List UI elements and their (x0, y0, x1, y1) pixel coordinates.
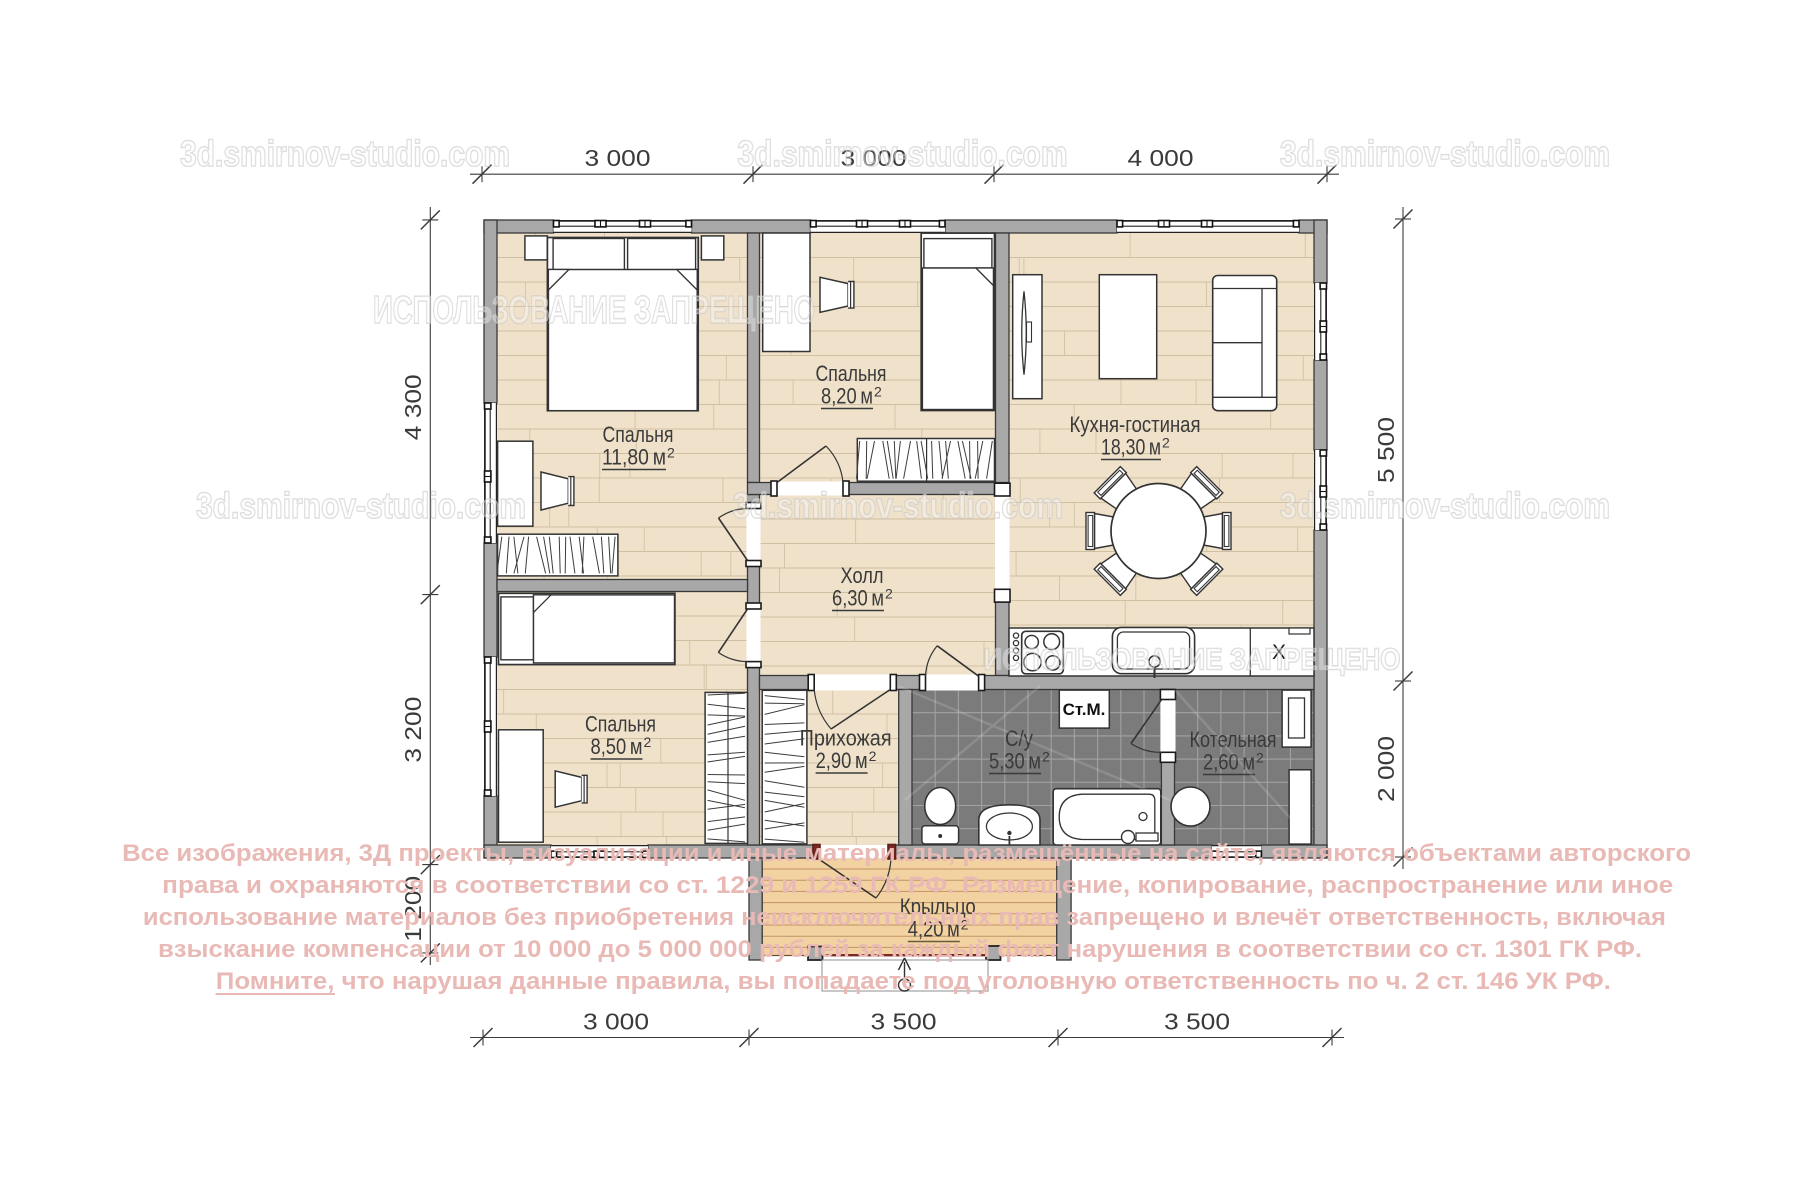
svg-text:3d.smirnov-studio.com: 3d.smirnov-studio.com (1280, 133, 1610, 174)
svg-text:5 500: 5 500 (1373, 417, 1399, 483)
svg-text:3 000: 3 000 (583, 1009, 649, 1035)
svg-text:2: 2 (1162, 435, 1170, 451)
svg-text:ИСПОЛЬЗОВАНИЕ ЗАПРЕЩЕНО: ИСПОЛЬЗОВАНИЕ ЗАПРЕЩЕНО (984, 642, 1401, 677)
svg-text:2: 2 (885, 586, 893, 602)
svg-text:2: 2 (644, 734, 652, 750)
svg-text:Котельная: Котельная (1190, 727, 1277, 752)
svg-text:8,20 м: 8,20 м (821, 384, 873, 409)
svg-text:2,90 м: 2,90 м (816, 748, 868, 773)
svg-text:11,80 м: 11,80 м (602, 445, 666, 470)
svg-text:использование материалов без п: использование материалов без приобретени… (143, 904, 1666, 931)
svg-text:Холл: Холл (841, 563, 884, 588)
svg-text:3 500: 3 500 (1164, 1009, 1230, 1035)
svg-text:Спальня: Спальня (585, 712, 656, 737)
svg-text:8,50 м: 8,50 м (591, 734, 643, 759)
svg-text:Кухня-гостиная: Кухня-гостиная (1070, 412, 1201, 437)
svg-text:6,30 м: 6,30 м (832, 586, 884, 611)
svg-text:Ст.М.: Ст.М. (1063, 700, 1106, 719)
svg-text:2: 2 (667, 445, 675, 461)
svg-text:3d.smirnov-studio.com: 3d.smirnov-studio.com (1280, 485, 1610, 526)
svg-text:С/у: С/у (1005, 726, 1033, 751)
svg-text:18,30 м: 18,30 м (1101, 435, 1161, 460)
svg-text:3 500: 3 500 (871, 1009, 937, 1035)
svg-text:2: 2 (874, 384, 882, 400)
svg-text:2: 2 (869, 748, 877, 764)
svg-text:ИСПОЛЬЗОВАНИЕ ЗАПРЕЩЕНО: ИСПОЛЬЗОВАНИЕ ЗАПРЕЩЕНО (373, 289, 815, 332)
svg-text:3 200: 3 200 (400, 697, 426, 763)
svg-text:2: 2 (1256, 750, 1264, 766)
svg-text:3d.smirnov-studio.com: 3d.smirnov-studio.com (180, 133, 510, 174)
svg-text:взыскание компенсации от 10 00: взыскание компенсации от 10 000 до 5 000… (158, 936, 1642, 963)
svg-text:Все изображения, 3Д проекты, в: Все изображения, 3Д проекты, визуализаци… (122, 840, 1691, 867)
svg-text:2 000: 2 000 (1373, 736, 1399, 802)
svg-text:Спальня: Спальня (816, 361, 887, 386)
svg-text:3 000: 3 000 (585, 145, 651, 171)
svg-text:2: 2 (1042, 749, 1050, 765)
svg-text:3d.smirnov-studio.com: 3d.smirnov-studio.com (196, 485, 526, 526)
svg-text:Прихожая: Прихожая (800, 726, 892, 751)
svg-text:права и охраняются в соответст: права и охраняются в соответствии со ст.… (162, 872, 1673, 899)
svg-text:Спальня: Спальня (603, 422, 674, 447)
svg-text:4 000: 4 000 (1128, 145, 1194, 171)
svg-text:3d.smirnov-studio.com: 3d.smirnov-studio.com (733, 485, 1063, 526)
svg-text:Помните, что нарушая данные пр: Помните, что нарушая данные правила, вы … (216, 968, 1611, 995)
svg-text:5,30 м: 5,30 м (989, 749, 1041, 774)
svg-text:3d.smirnov-studio.com: 3d.smirnov-studio.com (738, 133, 1068, 174)
svg-text:4 300: 4 300 (400, 374, 426, 440)
